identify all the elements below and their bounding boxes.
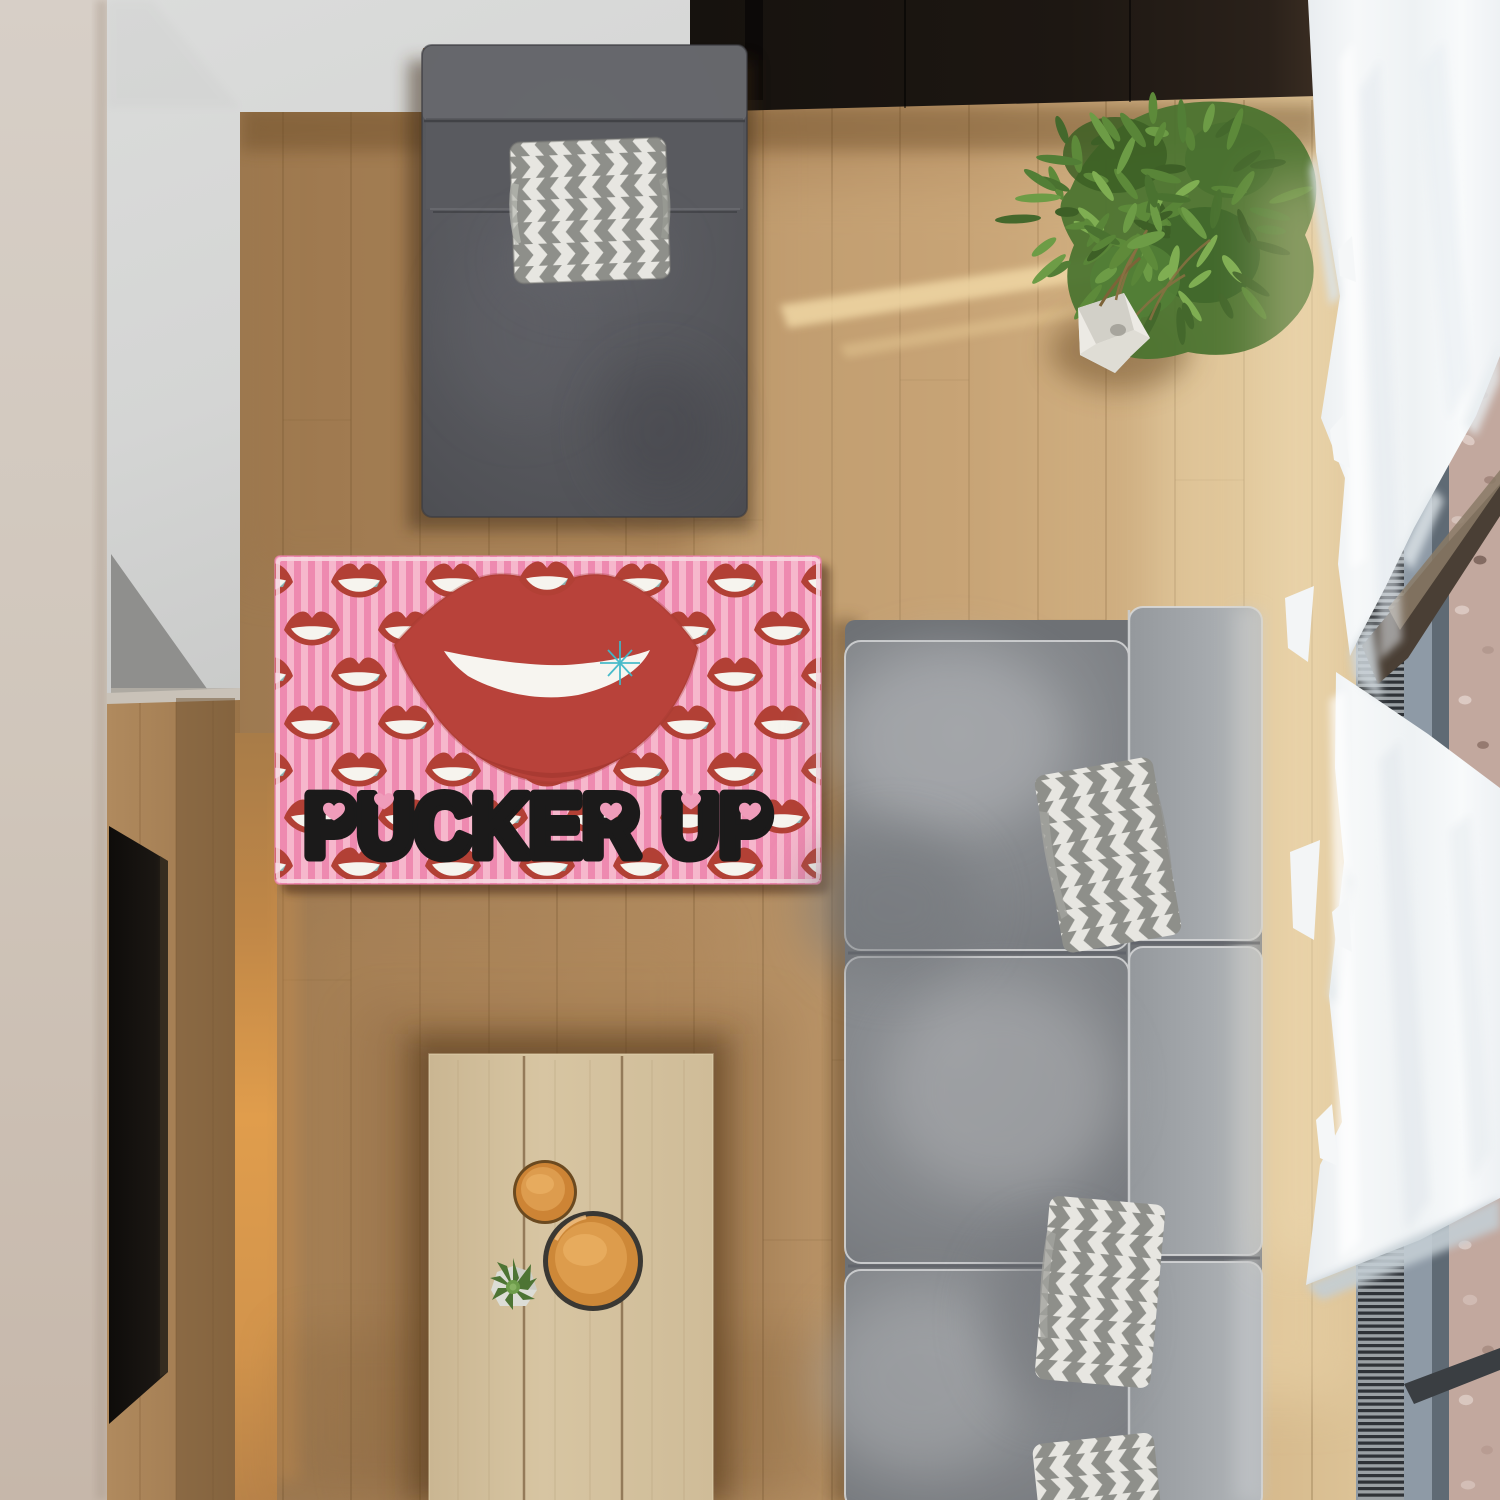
svg-text:PUCKER UP: PUCKER UP <box>304 776 772 875</box>
